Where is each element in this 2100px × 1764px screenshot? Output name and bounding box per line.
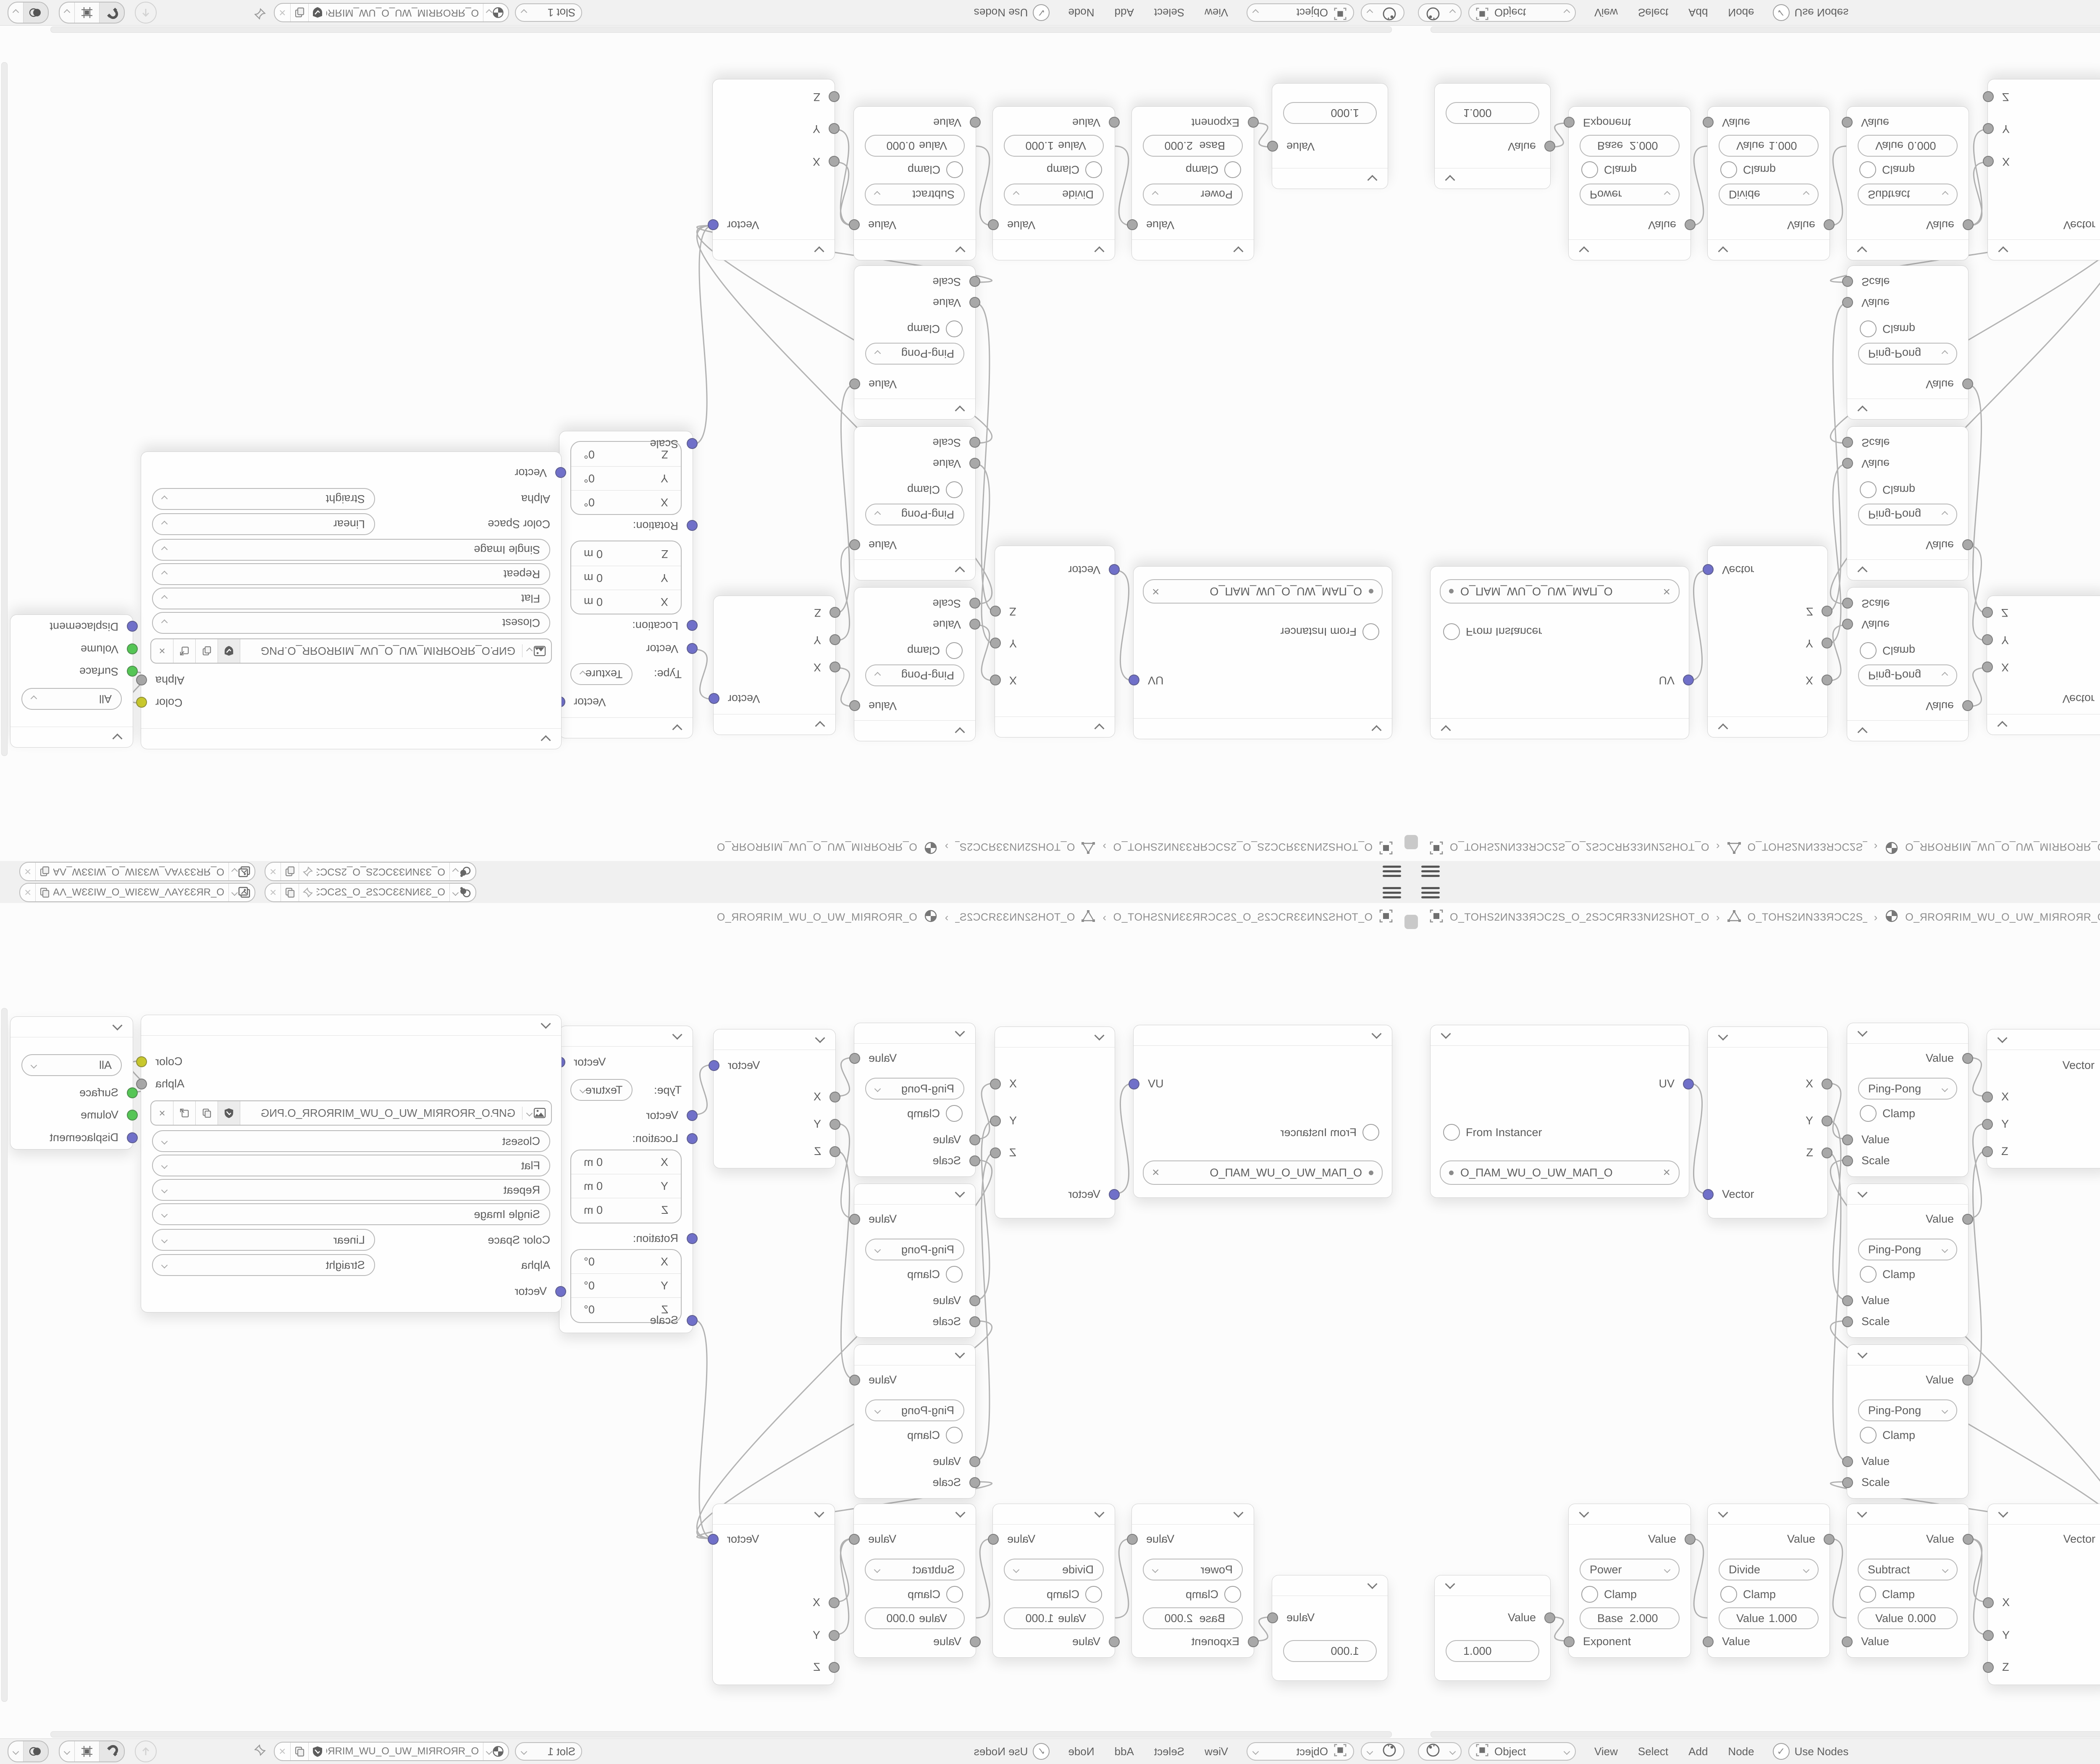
slot-dropdown[interactable]: Slot 1 bbox=[515, 3, 582, 22]
checkbox[interactable]: From Instancer bbox=[1431, 1121, 1689, 1144]
output-socket[interactable] bbox=[849, 1375, 860, 1386]
math-subtract-node[interactable]: ValueSubtractClampValue0.000Value bbox=[853, 1504, 976, 1658]
collapse-chevron-icon[interactable] bbox=[541, 735, 551, 745]
number-field[interactable]: Value1.000 bbox=[1719, 135, 1819, 157]
dropdown[interactable]: Power bbox=[1143, 184, 1243, 205]
collapse-chevron-icon[interactable] bbox=[1367, 175, 1377, 185]
input-socket[interactable] bbox=[127, 1132, 138, 1143]
editor-type-button[interactable] bbox=[1361, 1742, 1404, 1761]
close-icon[interactable]: × bbox=[20, 865, 35, 878]
input-socket[interactable] bbox=[829, 661, 840, 672]
menu-add[interactable]: Add bbox=[1110, 6, 1138, 19]
material-icon[interactable] bbox=[483, 1743, 508, 1760]
dropdown[interactable]: Divide bbox=[1719, 184, 1819, 205]
dropdown[interactable]: Ping-Pong bbox=[865, 1078, 964, 1100]
output-socket[interactable] bbox=[1822, 1079, 1832, 1089]
checkbox[interactable]: Clamp bbox=[854, 478, 975, 501]
input-socket[interactable] bbox=[127, 643, 138, 654]
output-socket[interactable] bbox=[1683, 1079, 1694, 1089]
menu-view[interactable]: View bbox=[1590, 1745, 1622, 1758]
output-socket[interactable] bbox=[988, 219, 999, 230]
menu-view[interactable]: View bbox=[1590, 6, 1622, 19]
input-socket[interactable] bbox=[1248, 117, 1259, 128]
output-socket[interactable] bbox=[1685, 219, 1696, 230]
collapse-chevron-icon[interactable] bbox=[672, 724, 682, 734]
dropdown[interactable]: Closest bbox=[152, 1130, 550, 1152]
collapse-chevron-icon[interactable] bbox=[1094, 246, 1104, 256]
collapse-chevron-icon[interactable] bbox=[1857, 566, 1867, 576]
node-header[interactable] bbox=[713, 1504, 835, 1525]
output-socket[interactable] bbox=[1822, 675, 1832, 685]
dropdown[interactable]: Texture bbox=[570, 1079, 633, 1101]
menu-node[interactable]: Node bbox=[1064, 6, 1098, 19]
collapse-chevron-icon[interactable] bbox=[1857, 1348, 1867, 1358]
node-header[interactable] bbox=[995, 717, 1115, 737]
slot-dropdown[interactable]: Slot 1 bbox=[515, 1742, 582, 1761]
overlays-icon[interactable] bbox=[24, 3, 48, 23]
input-socket[interactable] bbox=[1564, 117, 1575, 128]
close-icon[interactable]: × bbox=[1152, 1165, 1160, 1180]
hamburger-menu-icon[interactable] bbox=[1383, 866, 1401, 877]
dropdown[interactable]: Subtract bbox=[865, 1559, 965, 1580]
input-socket[interactable] bbox=[687, 1110, 698, 1121]
output-socket[interactable] bbox=[1822, 1116, 1832, 1126]
number-field[interactable]: 1.000 bbox=[1446, 1640, 1539, 1662]
node-header[interactable] bbox=[1272, 168, 1388, 189]
input-socket[interactable] bbox=[829, 156, 840, 167]
combine-xyz-node-1[interactable]: VectorXYZ bbox=[713, 596, 836, 735]
input-socket[interactable] bbox=[829, 1119, 840, 1130]
checkbox[interactable]: Clamp bbox=[854, 1583, 976, 1606]
combine-xyz-node-2[interactable]: VectorXYZ bbox=[712, 79, 835, 260]
material-output-node[interactable]: AllSurfaceVolumeDisplacement bbox=[10, 1016, 133, 1150]
node-graph[interactable]: UVFrom InstancerО_ПАМ_WU_O_UW_МАП_О×XYZV… bbox=[1411, 903, 2100, 1739]
input-socket[interactable] bbox=[829, 1092, 840, 1102]
collapse-chevron-icon[interactable] bbox=[955, 1507, 965, 1517]
collapse-chevron-icon[interactable] bbox=[1857, 1187, 1867, 1197]
input-socket[interactable] bbox=[1842, 619, 1853, 630]
output-socket[interactable] bbox=[849, 1053, 860, 1064]
menu-add[interactable]: Add bbox=[1110, 1745, 1138, 1758]
vertical-scrollbar[interactable] bbox=[1, 1008, 8, 1702]
output-socket[interactable] bbox=[1962, 700, 1973, 711]
separate-xyz-node[interactable]: XYZVector bbox=[995, 546, 1115, 738]
horizontal-scrollbar[interactable] bbox=[1431, 1731, 2100, 1738]
math-pingpong-node-1[interactable]: ValuePing-PongClampValueScale bbox=[1847, 587, 1969, 741]
node-header[interactable] bbox=[993, 239, 1115, 260]
uv-map-node[interactable]: UVFrom InstancerО_ПАМ_WU_O_UW_МАП_О× bbox=[1133, 566, 1392, 739]
input-socket[interactable] bbox=[1109, 1189, 1120, 1200]
output-socket[interactable] bbox=[708, 1534, 719, 1545]
material-output-node[interactable]: AllSurfaceVolumeDisplacement bbox=[10, 614, 133, 748]
output-socket[interactable] bbox=[1962, 539, 1973, 550]
node-header[interactable] bbox=[1569, 1504, 1690, 1525]
input-socket[interactable] bbox=[1109, 564, 1120, 575]
node-header[interactable] bbox=[1847, 1345, 1968, 1365]
overlays-controls[interactable] bbox=[8, 2, 49, 24]
number-field[interactable]: Base2.000 bbox=[1143, 1607, 1243, 1629]
node-header[interactable] bbox=[854, 1504, 976, 1525]
node-header[interactable] bbox=[1988, 239, 2100, 260]
number-field[interactable]: Value0.000 bbox=[1858, 135, 1958, 157]
shader-type-dropdown[interactable]: Object bbox=[1247, 1742, 1354, 1761]
output-socket[interactable] bbox=[849, 378, 860, 389]
output-socket[interactable] bbox=[1962, 378, 1973, 389]
input-socket[interactable] bbox=[127, 666, 138, 677]
input-socket[interactable] bbox=[1982, 634, 1993, 645]
close-icon[interactable]: × bbox=[275, 1745, 290, 1758]
dropdown[interactable]: Power bbox=[1580, 1559, 1680, 1580]
menu-select[interactable]: Select bbox=[1634, 1745, 1672, 1758]
menu-view[interactable]: View bbox=[1200, 6, 1232, 19]
input-socket[interactable] bbox=[1703, 117, 1714, 128]
input-socket[interactable] bbox=[1982, 1119, 1993, 1130]
close-icon[interactable]: × bbox=[275, 6, 290, 19]
input-socket[interactable] bbox=[1842, 117, 1853, 128]
node-header[interactable] bbox=[1134, 718, 1392, 739]
fake-user-shield-icon[interactable] bbox=[218, 1101, 240, 1125]
dropdown[interactable]: Ping-Pong bbox=[1858, 1078, 1957, 1100]
node-header[interactable] bbox=[1988, 1504, 2100, 1525]
node-header[interactable] bbox=[854, 559, 975, 580]
shader-type-dropdown[interactable]: Object bbox=[1468, 1742, 1576, 1761]
number-field[interactable]: Value1.000 bbox=[1004, 1607, 1104, 1629]
output-socket[interactable] bbox=[849, 219, 860, 230]
node-header[interactable] bbox=[1431, 1025, 1689, 1046]
input-socket[interactable] bbox=[829, 123, 840, 134]
input-socket[interactable] bbox=[1564, 1636, 1575, 1647]
output-socket[interactable] bbox=[1685, 1534, 1696, 1545]
input-socket[interactable] bbox=[1983, 123, 1994, 134]
checkbox[interactable]: Clamp bbox=[854, 318, 975, 340]
menu-node[interactable]: Node bbox=[1064, 1745, 1098, 1758]
checkbox[interactable]: Clamp bbox=[1847, 318, 1968, 340]
node-header[interactable] bbox=[854, 720, 975, 741]
scene-selector[interactable]: O_ЗЗNИЗЗƆC2S_O_2SƆCЗЗN... × bbox=[265, 862, 476, 881]
output-socket[interactable] bbox=[1963, 219, 1974, 230]
collapse-chevron-icon[interactable] bbox=[1718, 723, 1728, 733]
vertical-scrollbar[interactable] bbox=[1, 62, 8, 756]
number-field[interactable]: 1.000 bbox=[1283, 102, 1377, 124]
input-socket[interactable] bbox=[1842, 1155, 1853, 1166]
uv-map-node[interactable]: UVFrom InstancerО_ПАМ_WU_O_UW_МАП_О× bbox=[1430, 1025, 1689, 1198]
node-header[interactable] bbox=[1132, 1504, 1254, 1525]
checkbox[interactable]: Clamp bbox=[993, 158, 1115, 181]
dropdown[interactable]: Ping-Pong bbox=[1858, 1239, 1957, 1260]
pin-icon[interactable] bbox=[299, 884, 317, 901]
pack-icon[interactable] bbox=[173, 639, 196, 663]
value-node[interactable]: Value1.000 bbox=[1434, 1575, 1551, 1681]
node-header[interactable] bbox=[854, 399, 975, 419]
magnet-icon[interactable] bbox=[100, 3, 124, 23]
node-header[interactable] bbox=[714, 714, 835, 735]
node-header[interactable] bbox=[854, 1023, 975, 1044]
snap-target-icon[interactable] bbox=[75, 1741, 100, 1761]
input-socket[interactable] bbox=[687, 1133, 698, 1144]
input-socket[interactable] bbox=[969, 297, 980, 308]
output-socket[interactable] bbox=[136, 675, 147, 685]
math-pingpong-node-3[interactable]: ValuePing-PongClampValueScale bbox=[854, 1344, 976, 1499]
math-power-node[interactable]: ValuePowerClampBase2.000Exponent bbox=[1131, 106, 1254, 260]
collapse-chevron-icon[interactable] bbox=[1857, 246, 1867, 256]
horizontal-scrollbar[interactable] bbox=[50, 26, 1392, 33]
node-header[interactable] bbox=[1708, 239, 1830, 260]
copy-icon[interactable] bbox=[35, 884, 53, 901]
dropdown[interactable]: Ping-Pong bbox=[1858, 504, 1957, 525]
view-layer-icon[interactable] bbox=[228, 884, 255, 901]
uv-map-node[interactable]: UVFrom InstancerО_ПАМ_WU_O_UW_МАП_О× bbox=[1133, 1025, 1392, 1198]
math-pingpong-node-2[interactable]: ValuePing-PongClampValueScale bbox=[854, 426, 976, 580]
math-divide-node[interactable]: ValueDivideClampValue1.000Value bbox=[992, 1504, 1115, 1658]
dropdown[interactable]: Ping-Pong bbox=[865, 1399, 964, 1421]
output-socket[interactable] bbox=[990, 1079, 1001, 1089]
number-field[interactable]: Value1.000 bbox=[1719, 1607, 1819, 1629]
scene-selector[interactable]: O_ЗЗNИЗЗƆC2S_O_2SƆCЗЗN... × bbox=[265, 883, 476, 902]
pin-icon[interactable] bbox=[254, 1744, 266, 1759]
input-socket[interactable] bbox=[970, 1636, 981, 1647]
node-header[interactable] bbox=[1708, 1027, 1827, 1047]
value-node[interactable]: Value1.000 bbox=[1272, 1575, 1388, 1681]
view-layer-selector[interactable]: O_ЯRЗЗYAΛ_WЗЗIW_O_WIЗЗW_ΛAYЗЗRЯ_O × bbox=[19, 862, 255, 881]
separate-xyz-node[interactable]: XYZVector bbox=[1707, 1026, 1828, 1218]
chevron-down-icon[interactable] bbox=[60, 3, 75, 23]
node-header[interactable] bbox=[1847, 1504, 1969, 1525]
collapse-chevron-icon[interactable] bbox=[1094, 1030, 1104, 1040]
checkbox[interactable]: Clamp bbox=[1847, 1263, 1968, 1286]
node-header[interactable] bbox=[141, 728, 561, 749]
collapse-chevron-icon[interactable] bbox=[1233, 246, 1243, 256]
number-field[interactable]: Value1.000 bbox=[1004, 135, 1104, 157]
math-pingpong-node-3[interactable]: ValuePing-PongClampValueScale bbox=[1847, 1344, 1969, 1499]
collapse-chevron-icon[interactable] bbox=[815, 1033, 825, 1043]
node-header[interactable] bbox=[10, 1017, 133, 1037]
dropdown[interactable]: Ping-Pong bbox=[1858, 1399, 1957, 1421]
checkbox[interactable]: Clamp bbox=[1132, 158, 1254, 181]
node-header[interactable] bbox=[1272, 1575, 1388, 1596]
value-node[interactable]: Value1.000 bbox=[1434, 83, 1551, 189]
math-divide-node[interactable]: ValueDivideClampValue1.000Value bbox=[1707, 1504, 1830, 1658]
output-socket[interactable] bbox=[1824, 1534, 1835, 1545]
value-node[interactable]: Value1.000 bbox=[1272, 83, 1388, 189]
pin-icon[interactable] bbox=[299, 863, 317, 880]
dropdown[interactable]: Ping-Pong bbox=[865, 504, 964, 525]
collapse-chevron-icon[interactable] bbox=[1579, 1507, 1589, 1517]
number-field[interactable]: Z0 m bbox=[571, 1198, 681, 1222]
input-socket[interactable] bbox=[1842, 598, 1853, 609]
input-socket[interactable] bbox=[1842, 437, 1853, 448]
number-field[interactable]: Y0° bbox=[571, 1273, 681, 1297]
collapse-chevron-icon[interactable] bbox=[1445, 175, 1455, 185]
input-socket[interactable] bbox=[1982, 1146, 1993, 1157]
number-field[interactable]: Base2.000 bbox=[1580, 1607, 1680, 1629]
uv-map-field[interactable]: О_ПАМ_WU_O_UW_МАП_О× bbox=[1143, 1160, 1383, 1185]
checkbox[interactable]: Clamp bbox=[854, 1263, 975, 1286]
node-header[interactable] bbox=[1847, 1184, 1968, 1205]
dropdown[interactable]: Texture bbox=[570, 663, 633, 685]
number-field[interactable]: Y0° bbox=[571, 467, 681, 491]
output-socket[interactable] bbox=[1824, 219, 1835, 230]
output-socket[interactable] bbox=[1962, 1214, 1973, 1225]
node-header[interactable] bbox=[854, 1345, 975, 1365]
number-field[interactable]: Z0 m bbox=[571, 542, 681, 566]
copy-icon[interactable] bbox=[196, 1101, 218, 1125]
input-socket[interactable] bbox=[829, 1597, 840, 1608]
output-socket[interactable] bbox=[990, 606, 1001, 617]
input-socket[interactable] bbox=[1842, 276, 1853, 287]
close-icon[interactable]: × bbox=[151, 1101, 173, 1125]
input-socket[interactable] bbox=[969, 458, 980, 469]
collapse-chevron-icon[interactable] bbox=[1094, 723, 1104, 733]
uv-map-field[interactable]: О_ПАМ_WU_O_UW_МАП_О× bbox=[1440, 579, 1680, 604]
output-socket[interactable] bbox=[708, 219, 719, 230]
node-header[interactable] bbox=[993, 1504, 1115, 1525]
menu-select[interactable]: Select bbox=[1150, 1745, 1189, 1758]
input-socket[interactable] bbox=[970, 117, 981, 128]
input-socket[interactable] bbox=[1703, 564, 1714, 575]
number-field[interactable]: X0° bbox=[571, 1250, 681, 1273]
separate-xyz-node[interactable]: XYZVector bbox=[995, 1026, 1115, 1218]
dropdown[interactable]: Subtract bbox=[865, 184, 965, 205]
number-field[interactable]: Y0 m bbox=[571, 566, 681, 590]
menu-select[interactable]: Select bbox=[1150, 6, 1189, 19]
node-header[interactable] bbox=[1847, 720, 1968, 741]
input-socket[interactable] bbox=[127, 1110, 138, 1121]
collapse-chevron-icon[interactable] bbox=[1094, 1507, 1104, 1517]
magnet-icon[interactable] bbox=[100, 1741, 124, 1761]
overlays-controls[interactable] bbox=[8, 1740, 49, 1762]
checkbox[interactable]: Clamp bbox=[1708, 1583, 1830, 1606]
collapse-chevron-icon[interactable] bbox=[815, 721, 825, 731]
editor-type-button[interactable] bbox=[1418, 1742, 1462, 1761]
use-nodes-checkbox[interactable]: ✓ Use Nodes bbox=[1773, 4, 1849, 21]
number-field[interactable]: Base2.000 bbox=[1580, 135, 1680, 157]
input-socket[interactable] bbox=[1842, 1295, 1853, 1306]
collapse-chevron-icon[interactable] bbox=[1997, 1033, 2007, 1043]
checkbox[interactable]: Clamp bbox=[854, 1424, 975, 1446]
dropdown[interactable]: Ping-Pong bbox=[865, 664, 964, 686]
dropdown[interactable]: Closest bbox=[152, 612, 550, 634]
checkbox[interactable]: Clamp bbox=[993, 1583, 1115, 1606]
image-icon[interactable] bbox=[522, 639, 551, 663]
go-to-parent-node-icon[interactable] bbox=[135, 2, 157, 24]
math-power-node[interactable]: ValuePowerClampBase2.000Exponent bbox=[1568, 106, 1691, 260]
input-socket[interactable] bbox=[687, 643, 698, 654]
view-layer-icon[interactable] bbox=[228, 863, 255, 880]
editor-type-button[interactable] bbox=[1418, 3, 1462, 22]
node-header[interactable] bbox=[10, 727, 133, 747]
dropdown[interactable]: Straight bbox=[152, 1254, 375, 1276]
collapse-chevron-icon[interactable] bbox=[112, 1020, 122, 1030]
input-socket[interactable] bbox=[687, 438, 698, 449]
collapse-chevron-icon[interactable] bbox=[1998, 1507, 2008, 1517]
input-socket[interactable] bbox=[829, 1630, 840, 1641]
node-header[interactable] bbox=[713, 239, 835, 260]
math-pingpong-node-3[interactable]: ValuePing-PongClampValueScale bbox=[854, 265, 976, 420]
output-socket[interactable] bbox=[990, 675, 1001, 685]
dropdown[interactable]: Straight bbox=[152, 488, 375, 510]
collapse-chevron-icon[interactable] bbox=[1997, 721, 2007, 731]
image-icon[interactable] bbox=[522, 1101, 551, 1125]
output-socket[interactable] bbox=[849, 539, 860, 550]
pin-icon[interactable] bbox=[254, 5, 266, 21]
input-socket[interactable] bbox=[969, 1456, 980, 1467]
collapse-chevron-icon[interactable] bbox=[955, 1348, 965, 1358]
number-field[interactable]: Base2.000 bbox=[1143, 135, 1243, 157]
number-field[interactable]: 1.000 bbox=[1446, 102, 1539, 124]
dropdown[interactable]: Power bbox=[1580, 184, 1680, 205]
fake-user-shield-icon[interactable] bbox=[308, 1743, 326, 1760]
math-pingpong-node-2[interactable]: ValuePing-PongClampValueScale bbox=[1847, 426, 1969, 580]
dropdown[interactable]: Flat bbox=[152, 1155, 550, 1176]
checkbox[interactable]: Clamp bbox=[1847, 1102, 1968, 1125]
input-socket[interactable] bbox=[1703, 1636, 1714, 1647]
input-socket[interactable] bbox=[1842, 458, 1853, 469]
close-icon[interactable]: × bbox=[1663, 1165, 1670, 1180]
collapse-chevron-icon[interactable] bbox=[1998, 246, 2008, 256]
checkbox[interactable]: Clamp bbox=[1847, 639, 1968, 662]
collapse-chevron-icon[interactable] bbox=[1857, 727, 1867, 737]
dropdown[interactable]: Repeat bbox=[152, 563, 550, 585]
collapse-chevron-icon[interactable] bbox=[955, 727, 965, 737]
checkbox[interactable]: Clamp bbox=[854, 158, 976, 181]
number-field[interactable]: Value0.000 bbox=[865, 1607, 965, 1629]
go-to-parent-node-icon[interactable] bbox=[135, 1740, 157, 1762]
close-icon[interactable]: × bbox=[1663, 584, 1670, 598]
combine-xyz-node-2[interactable]: VectorXYZ bbox=[712, 1504, 835, 1685]
copy-icon[interactable] bbox=[290, 1743, 308, 1760]
dropdown[interactable]: Flat bbox=[152, 588, 550, 609]
menu-select[interactable]: Select bbox=[1634, 6, 1672, 19]
node-header[interactable] bbox=[1987, 1029, 2100, 1050]
input-socket[interactable] bbox=[1842, 1316, 1853, 1327]
collapse-chevron-icon[interactable] bbox=[541, 1018, 551, 1029]
snapping-controls[interactable] bbox=[59, 1740, 125, 1762]
output-socket[interactable] bbox=[709, 1060, 719, 1071]
math-power-node[interactable]: ValuePowerClampBase2.000Exponent bbox=[1568, 1504, 1691, 1658]
collapse-chevron-icon[interactable] bbox=[1718, 1030, 1728, 1040]
separate-xyz-node[interactable]: XYZVector bbox=[1707, 546, 1828, 738]
collapse-chevron-icon[interactable] bbox=[814, 1507, 824, 1517]
input-socket[interactable] bbox=[1983, 91, 1994, 102]
node-header[interactable] bbox=[559, 717, 693, 738]
number-field[interactable]: Y0 m bbox=[571, 1174, 681, 1198]
input-socket[interactable] bbox=[687, 520, 698, 531]
dropdown[interactable]: Ping-Pong bbox=[1858, 664, 1957, 686]
math-subtract-node[interactable]: ValueSubtractClampValue0.000Value bbox=[853, 106, 976, 260]
horizontal-scrollbar[interactable] bbox=[1431, 26, 2100, 33]
fake-user-shield-icon[interactable] bbox=[308, 4, 326, 21]
output-socket[interactable] bbox=[1544, 1612, 1555, 1623]
output-socket[interactable] bbox=[1127, 219, 1138, 230]
collapse-chevron-icon[interactable] bbox=[955, 246, 965, 256]
input-socket[interactable] bbox=[1983, 1630, 1994, 1641]
node-header[interactable] bbox=[1132, 239, 1254, 260]
input-socket[interactable] bbox=[969, 1295, 980, 1306]
collapse-chevron-icon[interactable] bbox=[672, 1029, 682, 1039]
checkbox[interactable]: From Instancer bbox=[1431, 620, 1689, 643]
image-texture-node[interactable]: ColorAlpha GИP.O_ЯROЯRIM_WU_O_UW_MIЯROЯR… bbox=[141, 451, 562, 749]
output-socket[interactable] bbox=[1962, 1375, 1973, 1386]
math-divide-node[interactable]: ValueDivideClampValue1.000Value bbox=[1707, 106, 1830, 260]
node-graph[interactable]: UVFrom InstancerО_ПАМ_WU_O_UW_МАП_О×XYZV… bbox=[0, 25, 1411, 861]
close-icon[interactable]: × bbox=[1152, 584, 1160, 598]
math-power-node[interactable]: ValuePowerClampBase2.000Exponent bbox=[1131, 1504, 1254, 1658]
dropdown[interactable]: All bbox=[21, 1054, 122, 1076]
menu-add[interactable]: Add bbox=[1684, 6, 1712, 19]
input-socket[interactable] bbox=[1982, 1092, 1993, 1102]
hamburger-menu-icon[interactable] bbox=[1421, 866, 1440, 877]
dropdown[interactable]: Divide bbox=[1004, 184, 1104, 205]
